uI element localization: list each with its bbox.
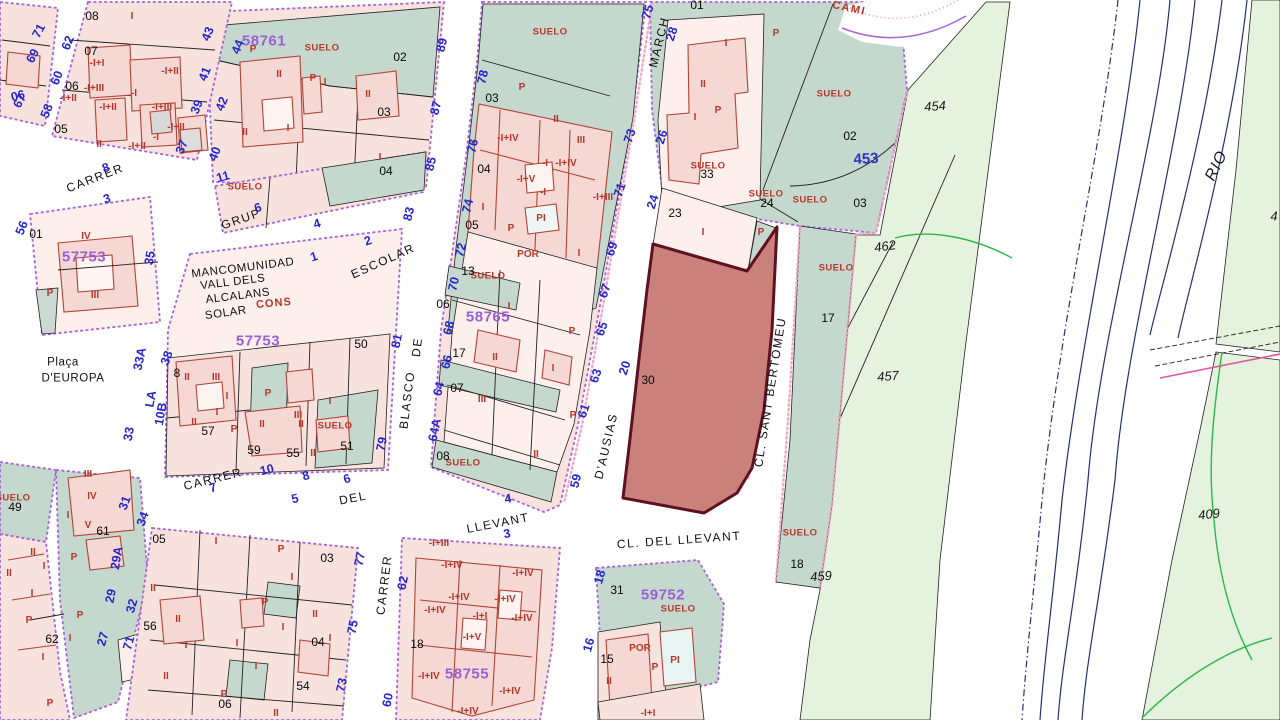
parcel-number-label: 33 — [700, 168, 713, 180]
rural-parcel-label: 4 — [1270, 210, 1277, 223]
parcel-number-label: 03 — [320, 552, 333, 564]
building-storeys-label: -I — [542, 159, 548, 169]
building-storeys-label: P — [231, 425, 238, 435]
street-name-label: LLEVANT — [466, 511, 531, 535]
address-number-label: 67 — [11, 92, 29, 110]
building-storeys-label: -I+III — [593, 193, 613, 203]
building-storeys-label: I — [508, 302, 511, 312]
building-storeys-label: P — [250, 45, 257, 55]
building-storeys-label: II — [6, 569, 12, 579]
address-number-label: 10 — [259, 462, 276, 477]
parcel-number-label: 30 — [641, 374, 654, 386]
building-storeys-label: P — [47, 289, 54, 299]
address-number-label: 44 — [230, 38, 247, 56]
building-storeys-label: -I+IV — [418, 672, 439, 682]
building-storeys-label: III — [478, 395, 486, 405]
suelo-label: SUELO — [446, 458, 481, 468]
path-name-label: CAMI — [831, 0, 867, 18]
building-storeys-label: P — [71, 553, 78, 563]
address-number-label: 35 — [143, 250, 158, 266]
address-number-label: 4 — [503, 492, 512, 506]
building-storeys-label: I — [282, 623, 285, 633]
address-number-label: 39 — [189, 98, 206, 116]
building-storeys-label: P — [773, 29, 780, 39]
building-storeys-label: I — [324, 78, 327, 88]
parcel-number-label: 8 — [174, 367, 181, 379]
address-number-label: 58 — [39, 102, 56, 120]
place-name-label: SOLAR — [204, 305, 247, 322]
address-number-label: 10B — [153, 402, 169, 427]
address-number-label: 2 — [363, 234, 374, 248]
street-name-label: ESCOLAR — [349, 242, 417, 281]
parcel-number-label: 50 — [354, 338, 367, 350]
address-number-label: 56 — [14, 219, 31, 237]
address-number-label: 3 — [102, 192, 112, 206]
building-storeys-label: I — [482, 203, 485, 213]
block-code-label: 59752 — [641, 588, 685, 603]
building-storeys-label: I — [131, 12, 134, 22]
building-storeys-label: -I+IV — [499, 687, 520, 697]
address-number-label: 89 — [434, 37, 449, 54]
address-number-label: 41 — [197, 65, 214, 83]
parcel-number-label: 03 — [377, 106, 390, 118]
address-number-label: 78 — [475, 69, 490, 86]
address-number-label: 77 — [352, 551, 367, 567]
building-storeys-label: PI — [536, 214, 545, 224]
address-number-label: 69 — [604, 240, 620, 257]
building-storeys-label: I — [31, 589, 34, 599]
parcel-number-label: 15 — [600, 653, 613, 665]
street-name-label: CARRER — [65, 162, 126, 195]
suelo-label: SUELO — [533, 27, 568, 37]
building-storeys-label: -I+II — [128, 142, 146, 152]
address-number-label: 29 — [103, 588, 118, 604]
suelo-label: SUELO — [318, 421, 353, 431]
building-storeys-label: -I+IV — [494, 595, 515, 605]
building-storeys-label: -I+II — [99, 103, 117, 113]
building-storeys-label: -I — [540, 188, 546, 198]
place-name-label: Plaça — [47, 357, 79, 369]
building-storeys-label: -I+III — [84, 84, 104, 94]
street-name-label: DEL — [338, 489, 368, 506]
street-name-label: MARCH — [647, 15, 671, 68]
parcel-number-label: 04 — [477, 163, 490, 175]
parcel-number-label: 24 — [760, 197, 773, 209]
block-code-label: 58761 — [242, 34, 286, 49]
street-name-label: CL. DEL LLEVANT — [616, 530, 741, 551]
address-number-label: 42 — [214, 95, 231, 113]
address-number-label: 18 — [592, 569, 608, 586]
suelo-label: SUELO — [793, 195, 828, 205]
parcel-number-label: 23 — [668, 207, 681, 219]
address-number-label: 29A — [109, 546, 125, 571]
address-number-label: 69 — [24, 47, 42, 65]
building-storeys-label: V — [85, 521, 92, 531]
address-number-label: 26 — [654, 128, 670, 145]
address-number-label: 64 — [431, 381, 446, 398]
building-storeys-label: -I+IV — [511, 614, 532, 624]
building-storeys-label: I — [291, 573, 294, 583]
building-storeys-label: IV — [81, 232, 90, 242]
parcel-number-label: 06 — [65, 80, 78, 92]
parcel-number-label: 31 — [610, 584, 623, 596]
street-name-label: CARRER — [374, 554, 393, 615]
suelo-label: SUELO — [783, 528, 818, 538]
building-storeys-label: -I — [153, 133, 159, 143]
address-number-label: 59 — [568, 473, 583, 490]
map-labels-layer: CARRERGRUPESCOLARDEBLASCOCARRERDELLLEVAN… — [0, 0, 1280, 720]
parcel-number-label: 03 — [853, 197, 866, 209]
address-number-label: 64A — [427, 417, 444, 442]
building-storeys-label: I — [379, 153, 382, 163]
address-number-label: 1 — [309, 250, 319, 264]
address-number-label: 65 — [594, 320, 610, 337]
building-storeys-label: -I+III — [429, 539, 449, 549]
building-storeys-label: P — [569, 327, 576, 337]
parcel-number-label: 49 — [8, 501, 21, 513]
building-storeys-label: P — [652, 663, 659, 673]
building-storeys-label: III — [84, 470, 92, 480]
building-storeys-label: II — [298, 420, 304, 430]
address-number-label: 87 — [428, 100, 443, 117]
address-number-label: 61 — [576, 402, 592, 419]
building-storeys-label: -I+II — [167, 123, 185, 133]
building-storeys-label: I — [578, 249, 581, 259]
building-storeys-label: II — [310, 449, 316, 459]
address-number-label: 20 — [617, 359, 633, 376]
building-storeys-label: II — [492, 353, 498, 363]
address-number-label: 73 — [334, 677, 349, 693]
address-number-label: 33A — [132, 346, 149, 371]
building-storeys-label: II — [175, 615, 181, 625]
building-storeys-label: III — [212, 373, 220, 383]
building-storeys-label: P — [310, 74, 317, 84]
block-code-label: 57753 — [236, 334, 280, 349]
building-storeys-label: I — [329, 397, 332, 407]
building-storeys-label: -I+II — [161, 67, 179, 77]
parcel-number-label: 05 — [465, 219, 478, 231]
suelo-label: SUELO — [661, 604, 696, 614]
address-number-label: 38 — [159, 349, 176, 366]
address-number-label: 71 — [30, 22, 48, 40]
building-storeys-label: -I+II — [59, 94, 77, 104]
building-storeys-label: I — [552, 364, 555, 374]
building-storeys-label: I — [185, 641, 188, 651]
parcel-number-label: 17 — [452, 347, 465, 359]
address-number-label: 71 — [121, 635, 137, 652]
cadastral-map-canvas[interactable]: CARRERGRUPESCOLARDEBLASCOCARRERDELLLEVAN… — [0, 0, 1280, 720]
building-storeys-label: II — [276, 70, 282, 80]
building-storeys-label: POR — [517, 250, 539, 260]
building-storeys-label: III — [91, 291, 99, 301]
building-storeys-label: P — [221, 690, 228, 700]
address-number-label: 8 — [301, 469, 311, 483]
parcel-number-label: 18 — [790, 558, 803, 570]
building-storeys-label: I — [694, 113, 697, 123]
parcel-number-label: 56 — [143, 620, 156, 632]
parcel-number-label: 08 — [436, 450, 449, 462]
address-number-label: 62 — [60, 34, 77, 52]
parcel-number-label: 55 — [286, 447, 299, 459]
parcel-number-label: 18 — [410, 638, 423, 650]
parcel-number-label: 04 — [311, 636, 324, 648]
building-storeys-label: P — [77, 611, 84, 621]
address-number-label: 32 — [124, 598, 140, 615]
building-storeys-label: I — [67, 511, 70, 521]
building-storeys-label: II — [191, 418, 197, 428]
parcel-number-label: 17 — [821, 312, 834, 324]
address-number-label: 71 — [612, 181, 628, 198]
river-name-label: RIO — [1203, 148, 1231, 183]
address-number-label: 40 — [207, 145, 224, 163]
parcel-number-label: 51 — [340, 440, 353, 452]
building-storeys-label: I — [329, 634, 332, 644]
address-number-label: 67 — [597, 282, 613, 299]
building-storeys-label: II — [365, 90, 371, 100]
building-storeys-label: P — [265, 389, 272, 399]
building-storeys-label: P — [262, 598, 269, 608]
address-number-label: 27 — [95, 631, 111, 648]
rural-parcel-label: 409 — [1198, 506, 1221, 521]
building-storeys-label: IV — [87, 492, 96, 502]
address-number-label: 85 — [423, 156, 438, 173]
address-number-label: 81 — [389, 333, 404, 349]
building-storeys-label: I — [226, 392, 229, 402]
building-storeys-label: P — [715, 106, 722, 116]
address-number-label: 3 — [502, 527, 511, 541]
building-storeys-label: I — [216, 408, 219, 418]
building-storeys-label: II — [259, 420, 265, 430]
parcel-number-label: 07 — [84, 45, 97, 57]
building-storeys-label: I — [42, 653, 45, 663]
building-storeys-label: -I+I — [641, 709, 656, 719]
address-number-label: 76 — [465, 138, 480, 155]
building-storeys-label: II — [312, 610, 318, 620]
address-number-label: 79 — [374, 436, 389, 452]
parcel-number-label: 01 — [690, 0, 703, 11]
parcel-number-label: 02 — [393, 51, 406, 63]
building-storeys-label: -I+IV — [555, 159, 576, 169]
building-storeys-label: P — [278, 545, 285, 555]
parcel-number-label: 57 — [201, 425, 214, 437]
building-storeys-label: -I — [131, 89, 137, 99]
building-storeys-label: P — [519, 83, 526, 93]
building-storeys-label: P — [26, 616, 33, 626]
address-number-label: 73 — [622, 127, 638, 144]
rural-parcel-label: 457 — [877, 369, 900, 383]
block-code-label: 57753 — [62, 250, 106, 265]
parcel-number-label: 02 — [843, 130, 856, 142]
suelo-label: SUELO — [228, 182, 263, 192]
parcel-number-label: 05 — [152, 533, 165, 545]
rural-parcel-label: 454 — [924, 99, 947, 113]
building-storeys-label: II — [700, 80, 706, 90]
parcel-number-label: 13 — [461, 265, 474, 277]
building-storeys-label: I — [702, 228, 705, 238]
polygon-number-label: 453 — [853, 151, 879, 167]
place-name-label: D'EUROPA — [41, 373, 104, 385]
address-number-label: 6 — [342, 472, 352, 486]
rural-parcel-label: 459 — [810, 569, 833, 583]
address-number-label: 60 — [49, 69, 66, 87]
building-storeys-label: II — [96, 140, 102, 150]
street-name-label: BLASCO — [397, 370, 416, 429]
suelo-label: SUELO — [305, 43, 340, 53]
construction-label: CONS — [256, 297, 293, 311]
building-storeys-label: II — [606, 677, 612, 687]
address-number-label: 63 — [588, 367, 604, 384]
suelo-label: SUELO — [817, 89, 852, 99]
building-storeys-label: I — [255, 662, 258, 672]
address-number-label: 11 — [215, 169, 231, 184]
building-storeys-label: -I+V — [517, 175, 536, 185]
building-storeys-label: P — [758, 228, 765, 238]
parcel-number-label: 54 — [296, 680, 309, 692]
building-storeys-label: -I+IV — [448, 593, 469, 603]
address-number-label: 34 — [135, 510, 152, 527]
building-storeys-label: II — [150, 584, 156, 594]
building-storeys-label: -I+I — [90, 59, 105, 69]
building-storeys-label: III — [577, 136, 585, 146]
address-number-label: 60 — [380, 692, 395, 708]
address-number-label: 75 — [345, 619, 360, 635]
building-storeys-label: II — [273, 709, 279, 719]
building-storeys-label: -I+IV — [457, 707, 478, 717]
building-storeys-label: I — [215, 537, 218, 547]
building-storeys-label: II — [184, 373, 190, 383]
address-number-label: 16 — [581, 637, 597, 654]
building-storeys-label: I — [725, 39, 728, 49]
building-storeys-label: I — [43, 562, 46, 572]
building-storeys-label: -I+V — [463, 633, 482, 643]
address-number-label: 24 — [645, 193, 661, 210]
building-storeys-label: II — [553, 115, 559, 125]
parcel-number-label: 05 — [54, 123, 67, 135]
building-storeys-label: I — [236, 639, 239, 649]
parcel-number-label: 08 — [85, 10, 98, 22]
building-storeys-label: I — [69, 634, 72, 644]
parcel-number-label: 62 — [45, 633, 58, 645]
building-storeys-label: II — [242, 128, 248, 138]
address-number-label: 31 — [117, 494, 134, 511]
building-storeys-label: PI — [670, 656, 679, 666]
address-number-label: 75 — [640, 3, 656, 20]
address-number-label: 72 — [453, 242, 468, 259]
address-number-label: 70 — [446, 276, 461, 293]
parcel-number-label: 03 — [485, 92, 498, 104]
building-storeys-label: -I+III — [152, 103, 172, 113]
address-number-label: 68 — [441, 320, 456, 337]
suelo-label: SUELO — [471, 271, 506, 281]
building-storeys-label: II — [30, 548, 36, 558]
street-name-label: DE — [410, 336, 424, 357]
address-number-label: 62 — [395, 575, 410, 591]
address-number-label: 37 — [174, 138, 191, 156]
block-code-label: 58765 — [466, 310, 510, 325]
building-storeys-label: -I+I — [473, 612, 488, 622]
parcel-number-label: 61 — [96, 525, 109, 537]
parcel-number-label: 01 — [29, 228, 42, 240]
building-storeys-label: II — [533, 450, 539, 460]
building-storeys-label: -I+IV — [512, 569, 533, 579]
street-name-label: CL. SANT BERTOMEU — [752, 316, 788, 468]
street-name-label: D'AUSIAS — [593, 412, 620, 481]
address-number-label: 4 — [312, 217, 322, 231]
parcel-number-label: 04 — [379, 165, 392, 177]
suelo-label: SUELO — [819, 263, 854, 273]
building-storeys-label: -I+IV — [497, 134, 518, 144]
building-storeys-label: P — [570, 411, 577, 421]
building-storeys-label: P — [47, 699, 54, 709]
building-storeys-label: POR — [629, 644, 651, 654]
parcel-number-label: 07 — [450, 382, 463, 394]
address-number-label: 74 — [460, 198, 475, 215]
building-storeys-label: I — [287, 124, 290, 134]
building-storeys-label: -I+IV — [424, 606, 445, 616]
building-storeys-label: -I+IV — [441, 561, 462, 571]
address-number-label: 5 — [290, 492, 300, 506]
building-storeys-label: P — [508, 224, 515, 234]
block-code-label: 58755 — [445, 667, 489, 682]
address-number-label: 43 — [200, 25, 217, 43]
parcel-number-label: 59 — [247, 444, 260, 456]
parcel-number-label: 06 — [436, 298, 449, 310]
rural-parcel-label: 462 — [873, 238, 896, 254]
address-number-label: 83 — [401, 206, 416, 223]
address-number-label: 33 — [122, 426, 137, 442]
building-storeys-label: II — [163, 672, 169, 682]
